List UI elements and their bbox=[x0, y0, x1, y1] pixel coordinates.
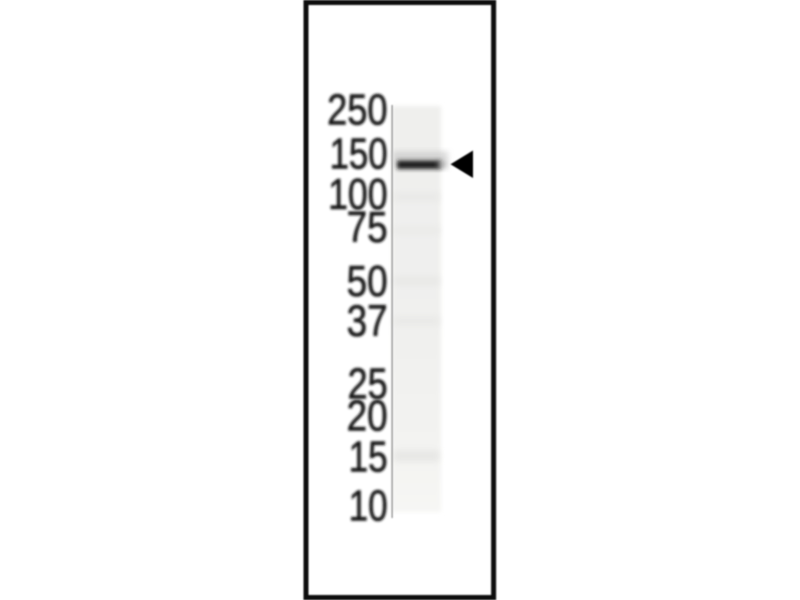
svg-text:37: 37 bbox=[347, 297, 388, 346]
svg-text:250: 250 bbox=[327, 86, 388, 134]
svg-text:75: 75 bbox=[347, 204, 388, 252]
svg-text:10: 10 bbox=[349, 483, 388, 531]
svg-text:15: 15 bbox=[349, 433, 388, 481]
